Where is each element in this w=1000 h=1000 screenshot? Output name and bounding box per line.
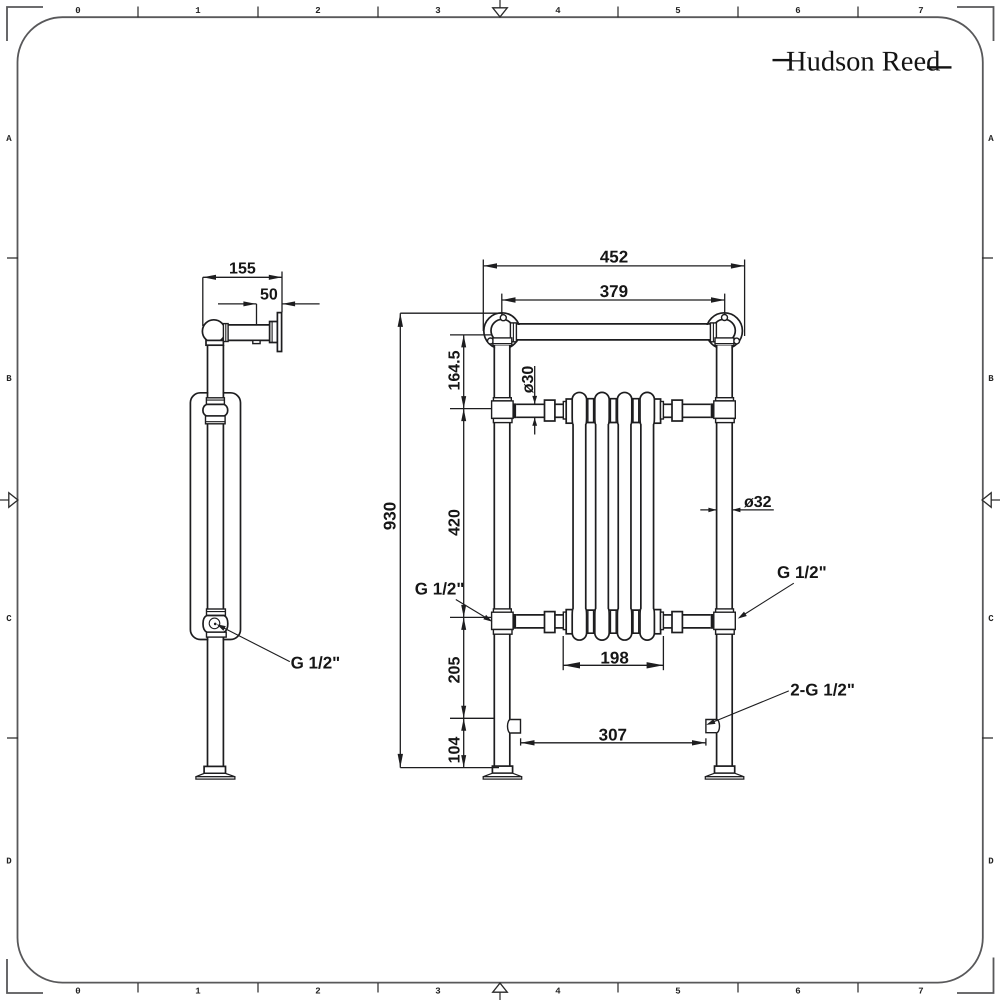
- svg-text:1: 1: [195, 6, 201, 16]
- svg-text:ø32: ø32: [744, 494, 772, 511]
- svg-text:104: 104: [447, 737, 464, 764]
- svg-text:7: 7: [918, 987, 923, 997]
- svg-text:3: 3: [435, 6, 440, 16]
- svg-text:ø30: ø30: [520, 366, 537, 394]
- svg-text:2: 2: [315, 987, 320, 997]
- svg-text:155: 155: [229, 261, 256, 278]
- svg-text:452: 452: [600, 248, 628, 267]
- svg-text:G 1/2": G 1/2": [777, 563, 827, 582]
- svg-text:7: 7: [918, 6, 923, 16]
- svg-text:1: 1: [195, 987, 201, 997]
- svg-text:C: C: [988, 614, 994, 624]
- svg-text:G 1/2": G 1/2": [291, 653, 341, 672]
- svg-text:164.5: 164.5: [447, 350, 464, 390]
- svg-text:50: 50: [260, 287, 278, 304]
- svg-text:420: 420: [447, 509, 464, 536]
- svg-text:2: 2: [315, 6, 320, 16]
- svg-text:4: 4: [555, 6, 561, 16]
- svg-text:5: 5: [675, 6, 680, 16]
- svg-text:930: 930: [381, 502, 400, 530]
- svg-text:5: 5: [675, 987, 680, 997]
- svg-text:C: C: [6, 614, 12, 624]
- svg-text:B: B: [988, 374, 994, 384]
- svg-text:198: 198: [600, 649, 628, 668]
- svg-text:A: A: [6, 134, 12, 144]
- svg-text:B: B: [6, 374, 12, 384]
- svg-text:D: D: [6, 857, 12, 867]
- svg-text:0: 0: [75, 6, 80, 16]
- svg-text:4: 4: [555, 987, 561, 997]
- svg-text:6: 6: [795, 6, 800, 16]
- svg-text:2-G 1/2": 2-G 1/2": [790, 680, 855, 699]
- svg-text:307: 307: [599, 725, 627, 744]
- svg-text:D: D: [988, 857, 994, 867]
- svg-text:Hudson Reed: Hudson Reed: [786, 47, 940, 78]
- svg-text:0: 0: [75, 987, 80, 997]
- svg-text:379: 379: [600, 282, 628, 301]
- svg-text:A: A: [988, 134, 994, 144]
- svg-text:3: 3: [435, 987, 440, 997]
- svg-text:6: 6: [795, 987, 800, 997]
- svg-text:205: 205: [447, 657, 464, 684]
- svg-text:G 1/2": G 1/2": [415, 579, 465, 598]
